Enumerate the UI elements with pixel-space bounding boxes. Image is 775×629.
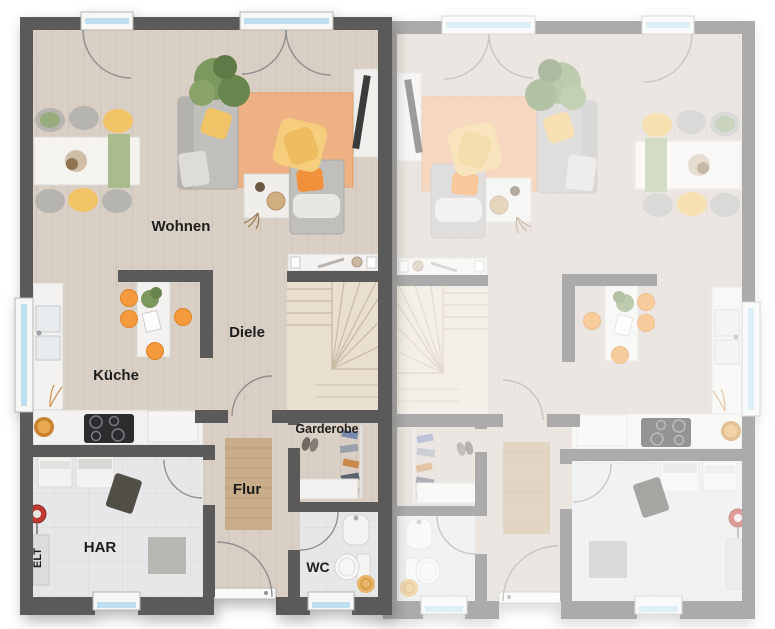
label-diele: Diele bbox=[229, 324, 265, 341]
dining-chair bbox=[676, 110, 706, 134]
label-har: HAR bbox=[84, 539, 117, 556]
sofa-cushion bbox=[565, 154, 597, 192]
french-door-top bbox=[240, 12, 333, 30]
kitchen-sink bbox=[715, 310, 739, 336]
window-left bbox=[15, 298, 33, 412]
dining-chair bbox=[69, 106, 99, 130]
dining-chair bbox=[103, 109, 133, 133]
window-top-left bbox=[642, 16, 694, 34]
window-har bbox=[93, 592, 140, 610]
dining-chair bbox=[643, 193, 673, 217]
dining-set bbox=[635, 110, 741, 217]
hall-sideboard bbox=[397, 258, 487, 275]
front-door bbox=[499, 592, 561, 603]
label-wohnen: Wohnen bbox=[152, 218, 211, 235]
kitchen-sink bbox=[36, 306, 60, 332]
table-runner bbox=[645, 138, 667, 192]
vase bbox=[255, 182, 265, 192]
storage-box bbox=[589, 541, 627, 578]
storage-box bbox=[148, 537, 186, 574]
tv-board bbox=[352, 69, 378, 157]
front-door bbox=[214, 588, 276, 599]
window-left bbox=[742, 302, 760, 416]
label-elt: ELT bbox=[32, 548, 44, 568]
hall-sideboard bbox=[288, 254, 378, 271]
label-flur: Flur bbox=[233, 481, 261, 498]
dining-chair bbox=[677, 192, 707, 216]
woven-plate bbox=[490, 196, 508, 214]
dining-set bbox=[34, 106, 140, 213]
bench bbox=[417, 483, 483, 503]
tv-board bbox=[397, 73, 423, 161]
vase bbox=[510, 186, 520, 196]
window-har bbox=[635, 596, 682, 614]
chaise-pillow bbox=[293, 194, 340, 218]
kitchen-appliance bbox=[148, 411, 198, 442]
woven-plate bbox=[267, 192, 285, 210]
label-garderobe: Garderobe bbox=[295, 422, 358, 436]
table-runner bbox=[108, 134, 130, 188]
floorplan-canvas: Wohnen Diele Küche Garderobe Flur HAR WC… bbox=[0, 0, 775, 629]
dining-chair bbox=[68, 188, 98, 212]
dining-chair bbox=[710, 193, 740, 217]
window-top-left bbox=[81, 12, 133, 30]
towel bbox=[400, 579, 418, 597]
towel bbox=[357, 575, 375, 593]
label-kueche: Küche bbox=[93, 367, 139, 384]
chaise-pillow bbox=[435, 198, 482, 222]
sofa-cushion bbox=[178, 150, 210, 188]
unit-right-mirrored bbox=[383, 21, 755, 619]
kitchen-appliance bbox=[577, 415, 627, 446]
window-wc bbox=[421, 596, 467, 614]
dining-chair bbox=[642, 113, 672, 137]
window-wc bbox=[308, 592, 354, 610]
french-door-top bbox=[442, 16, 535, 34]
bench bbox=[292, 479, 358, 499]
unit-left: Wohnen Diele Küche Garderobe Flur HAR WC… bbox=[20, 17, 392, 615]
elt-panel bbox=[726, 539, 742, 589]
dining-chair bbox=[102, 189, 132, 213]
label-wc: WC bbox=[306, 559, 329, 575]
dining-chair bbox=[35, 189, 65, 213]
hall-rug bbox=[503, 442, 550, 534]
